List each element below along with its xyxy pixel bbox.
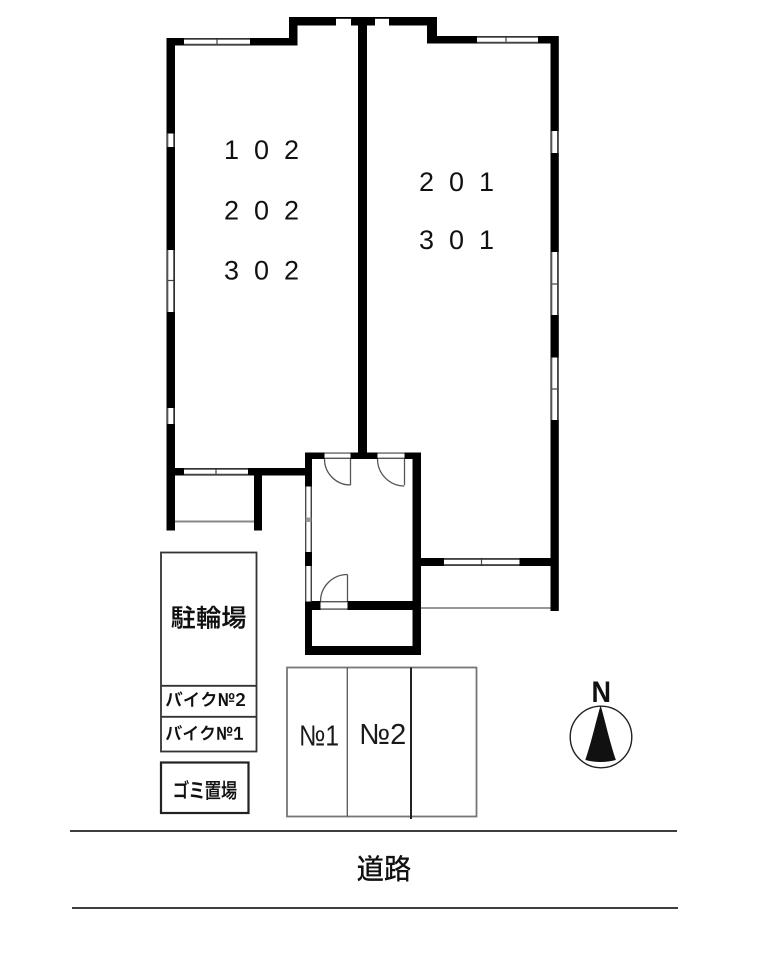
svg-text:№1: №1: [299, 721, 339, 753]
svg-text:301: 301: [419, 225, 509, 255]
svg-text:201: 201: [419, 167, 509, 197]
svg-text:№2: №2: [359, 719, 406, 751]
svg-text:102: 102: [224, 135, 314, 165]
svg-text:N: N: [592, 676, 612, 709]
svg-text:302: 302: [224, 256, 314, 286]
svg-text:202: 202: [224, 196, 314, 226]
